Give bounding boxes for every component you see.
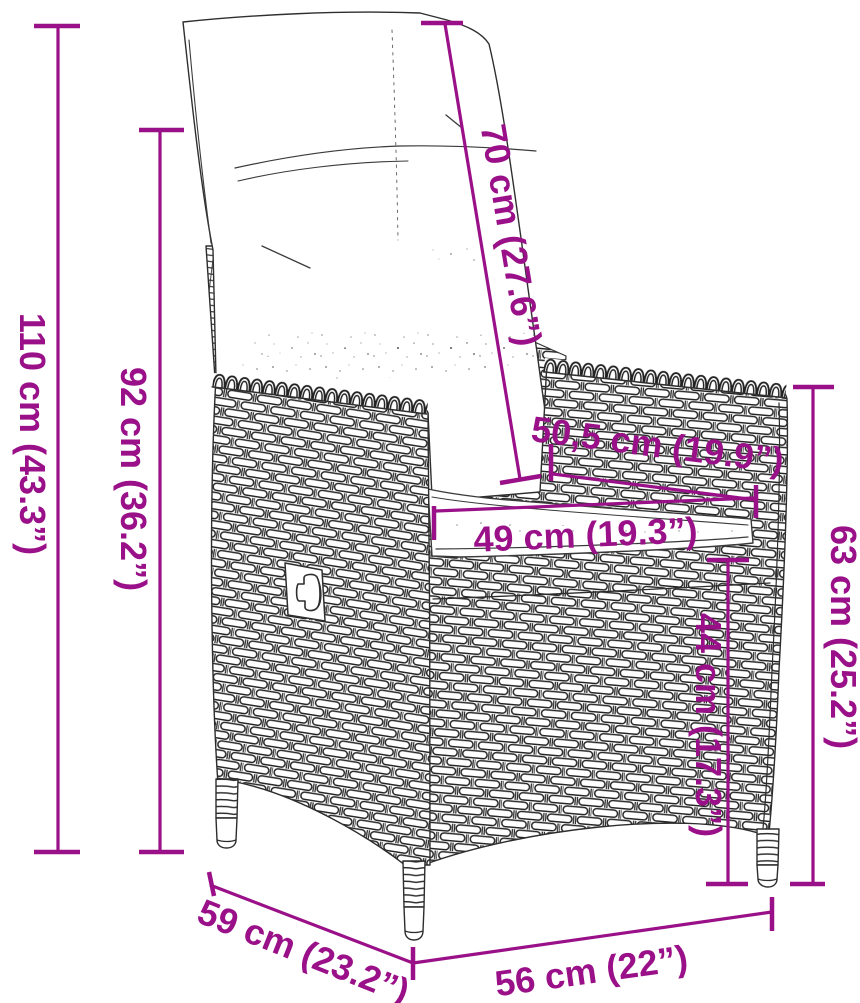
svg-text:110 cm (43.3”): 110 cm (43.3”) — [12, 313, 53, 555]
svg-text:63 cm (25.2”): 63 cm (25.2”) — [823, 525, 860, 749]
svg-text:44 cm (17.3”): 44 cm (17.3”) — [688, 613, 729, 837]
svg-text:92 cm (36.2”): 92 cm (36.2”) — [113, 367, 154, 591]
